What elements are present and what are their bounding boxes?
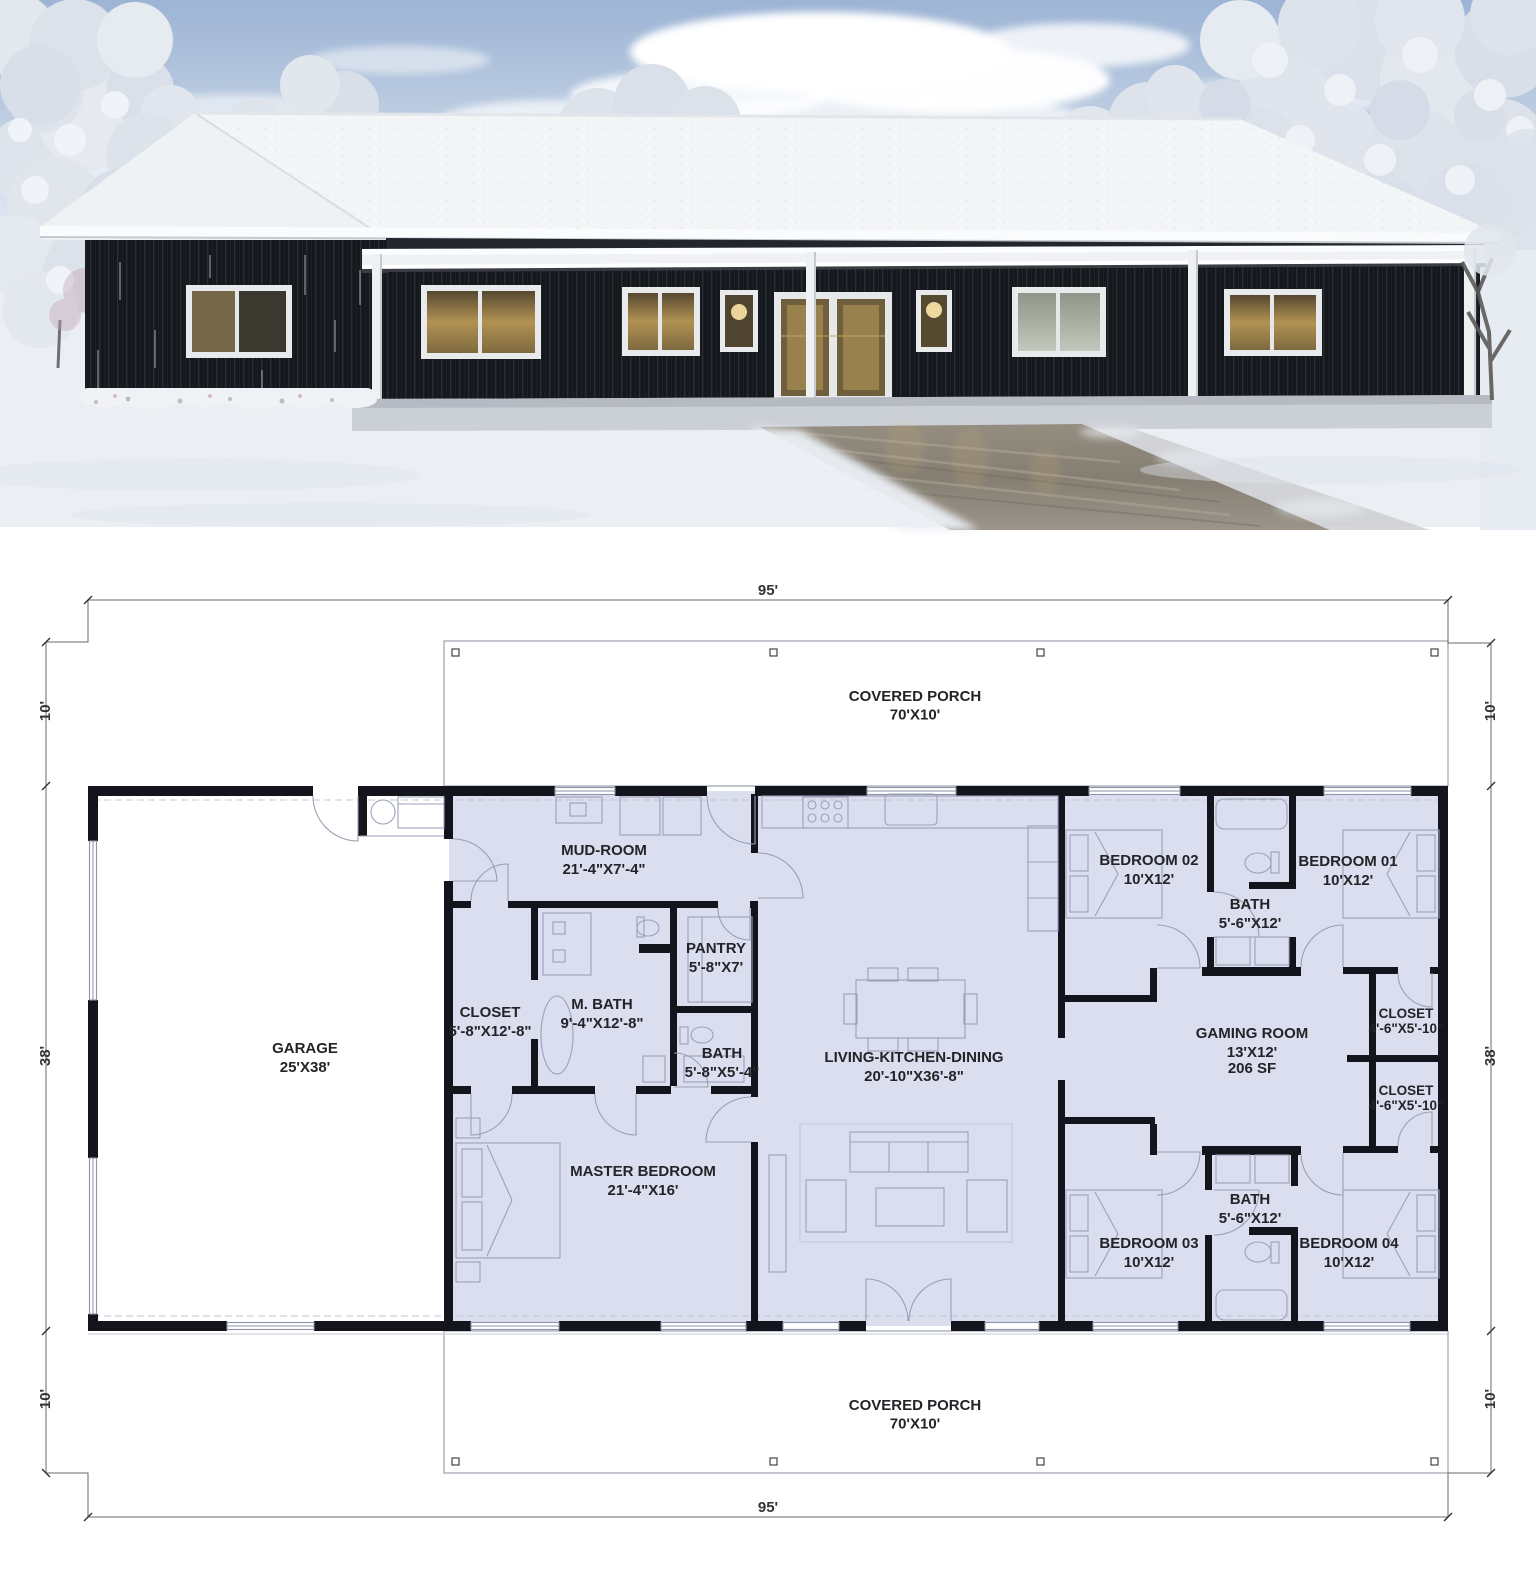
svg-text:10': 10' xyxy=(37,701,54,721)
svg-text:MASTER BEDROOM: MASTER BEDROOM xyxy=(570,1163,716,1180)
svg-text:LIVING-KITCHEN-DINING: LIVING-KITCHEN-DINING xyxy=(824,1049,1003,1066)
svg-text:BEDROOM 04: BEDROOM 04 xyxy=(1299,1235,1399,1252)
svg-text:10': 10' xyxy=(1482,701,1499,721)
svg-text:9'-4"X12'-8": 9'-4"X12'-8" xyxy=(560,1015,643,1032)
svg-text:GARAGE: GARAGE xyxy=(272,1040,338,1057)
svg-text:25'X38': 25'X38' xyxy=(280,1059,331,1076)
svg-text:10'X12': 10'X12' xyxy=(1323,872,1374,889)
svg-text:10': 10' xyxy=(1482,1389,1499,1409)
svg-text:95': 95' xyxy=(758,582,778,599)
svg-text:5'-6"X12': 5'-6"X12' xyxy=(1219,1210,1282,1227)
svg-text:COVERED PORCH: COVERED PORCH xyxy=(849,1397,982,1414)
svg-text:BEDROOM 01: BEDROOM 01 xyxy=(1298,853,1397,870)
svg-text:GAMING ROOM: GAMING ROOM xyxy=(1196,1025,1309,1042)
svg-text:CLOSET: CLOSET xyxy=(1379,1006,1435,1021)
svg-text:BEDROOM 02: BEDROOM 02 xyxy=(1099,852,1198,869)
svg-text:95': 95' xyxy=(758,1499,778,1516)
svg-text:BATH: BATH xyxy=(1230,1191,1271,1208)
svg-text:PANTRY: PANTRY xyxy=(686,940,746,957)
svg-text:M. BATH: M. BATH xyxy=(571,996,632,1013)
svg-text:10'X12': 10'X12' xyxy=(1124,1254,1175,1271)
svg-text:COVERED PORCH: COVERED PORCH xyxy=(849,688,982,705)
svg-text:206 SF: 206 SF xyxy=(1228,1060,1276,1077)
svg-text:BATH: BATH xyxy=(1230,896,1271,913)
svg-text:BATH: BATH xyxy=(702,1045,743,1062)
svg-text:5'-8"X12'-8": 5'-8"X12'-8" xyxy=(448,1023,531,1040)
svg-text:MUD-ROOM: MUD-ROOM xyxy=(561,842,647,859)
svg-text:10': 10' xyxy=(37,1389,54,1409)
svg-text:4'-6"X5'-10": 4'-6"X5'-10" xyxy=(1369,1098,1444,1113)
svg-text:38': 38' xyxy=(37,1046,54,1066)
svg-text:70'X10': 70'X10' xyxy=(890,1416,941,1433)
svg-text:20'-10"X36'-8": 20'-10"X36'-8" xyxy=(864,1068,964,1085)
svg-text:21'-4"X16': 21'-4"X16' xyxy=(608,1182,679,1199)
svg-text:5'-8"X5'-4": 5'-8"X5'-4" xyxy=(685,1064,760,1081)
svg-text:CLOSET: CLOSET xyxy=(1379,1083,1435,1098)
svg-text:10'X12': 10'X12' xyxy=(1324,1254,1375,1271)
svg-text:5'-8"X7': 5'-8"X7' xyxy=(689,959,743,976)
svg-text:CLOSET: CLOSET xyxy=(460,1004,521,1021)
svg-text:4'-6"X5'-10": 4'-6"X5'-10" xyxy=(1369,1021,1444,1036)
svg-text:21'-4"X7'-4": 21'-4"X7'-4" xyxy=(562,861,645,878)
svg-text:38': 38' xyxy=(1482,1046,1499,1066)
svg-text:10'X12': 10'X12' xyxy=(1124,871,1175,888)
svg-text:70'X10': 70'X10' xyxy=(890,707,941,724)
svg-text:13'X12': 13'X12' xyxy=(1227,1044,1278,1061)
svg-text:5'-6"X12': 5'-6"X12' xyxy=(1219,915,1282,932)
svg-text:BEDROOM 03: BEDROOM 03 xyxy=(1099,1235,1198,1252)
